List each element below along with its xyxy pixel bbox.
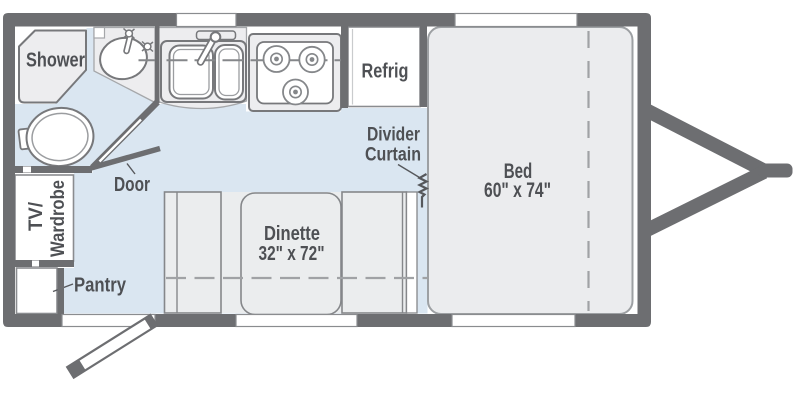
svg-text:Door: Door [114,174,150,196]
svg-text:Refrig: Refrig [362,61,409,83]
svg-text:32" x 72": 32" x 72" [259,242,325,265]
svg-text:60" x 74": 60" x 74" [484,179,551,202]
svg-text:Pantry: Pantry [74,275,127,297]
svg-text:Wardrobe: Wardrobe [48,180,69,257]
svg-text:Divider: Divider [367,123,420,145]
svg-text:Curtain: Curtain [365,143,421,165]
svg-text:TV/: TV/ [26,201,47,231]
svg-text:Shower: Shower [26,50,85,72]
